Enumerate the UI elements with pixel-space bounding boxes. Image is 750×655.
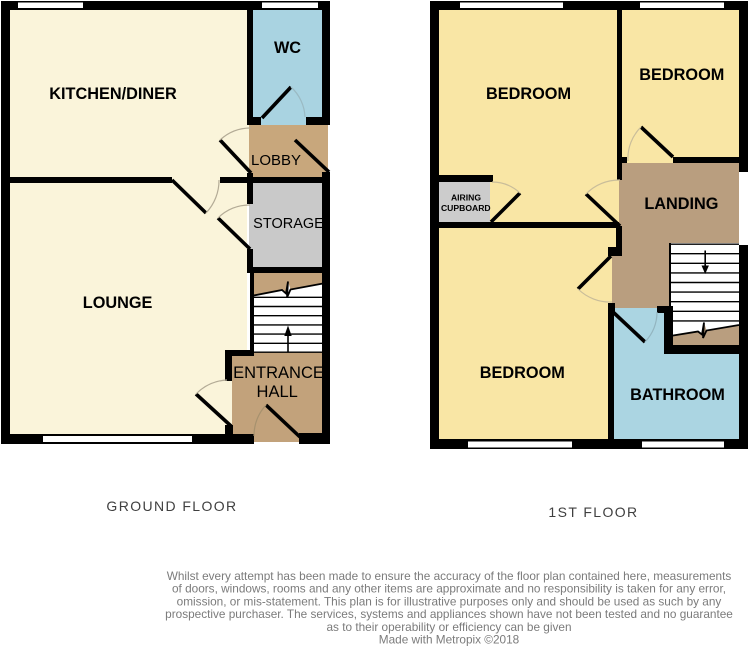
svg-text:BEDROOM: BEDROOM: [639, 66, 724, 84]
svg-text:GROUND FLOOR: GROUND FLOOR: [106, 498, 237, 514]
svg-text:KITCHEN/DINER: KITCHEN/DINER: [49, 85, 177, 103]
svg-text:WC: WC: [274, 39, 301, 57]
svg-text:BATHROOM: BATHROOM: [630, 386, 725, 404]
svg-text:LANDING: LANDING: [644, 195, 718, 213]
svg-text:LOBBY: LOBBY: [251, 152, 301, 169]
svg-text:CUPBOARD: CUPBOARD: [441, 203, 491, 213]
svg-text:LOUNGE: LOUNGE: [83, 294, 153, 312]
svg-text:AIRING: AIRING: [451, 193, 481, 203]
svg-text:Made with Metropix ©2018: Made with Metropix ©2018: [379, 633, 520, 647]
svg-text:BEDROOM: BEDROOM: [486, 85, 571, 103]
svg-text:1ST FLOOR: 1ST FLOOR: [548, 504, 638, 520]
svg-text:ENTRANCE: ENTRANCE: [233, 364, 324, 382]
svg-text:HALL: HALL: [257, 383, 298, 401]
svg-text:BEDROOM: BEDROOM: [480, 364, 565, 382]
svg-text:STORAGE: STORAGE: [253, 216, 324, 232]
